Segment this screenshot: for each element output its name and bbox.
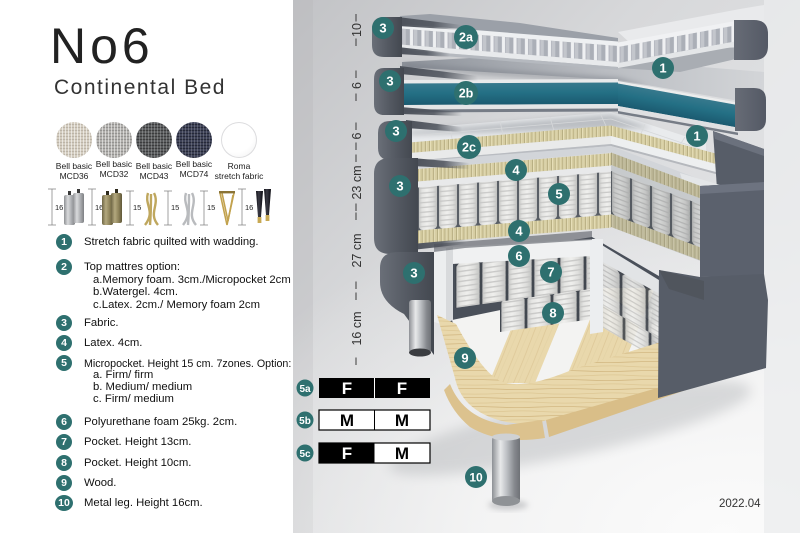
svg-text:7: 7 xyxy=(547,265,554,280)
svg-text:5a: 5a xyxy=(299,384,311,395)
svg-text:5: 5 xyxy=(555,187,562,202)
svg-text:6: 6 xyxy=(515,249,522,264)
svg-text:10: 10 xyxy=(469,471,483,485)
svg-text:16 cm: 16 cm xyxy=(350,311,364,345)
svg-text:F: F xyxy=(397,379,407,398)
svg-text:2c: 2c xyxy=(462,141,476,155)
svg-text:5b: 5b xyxy=(299,416,311,427)
svg-text:3: 3 xyxy=(386,74,393,89)
svg-text:3: 3 xyxy=(379,21,386,36)
svg-text:M: M xyxy=(340,411,354,430)
svg-text:27 cm: 27 cm xyxy=(350,233,364,267)
svg-text:2a: 2a xyxy=(459,31,474,45)
svg-text:1: 1 xyxy=(659,61,666,76)
svg-text:2022.04: 2022.04 xyxy=(719,498,761,510)
svg-text:4: 4 xyxy=(515,224,523,239)
svg-text:9: 9 xyxy=(461,351,468,366)
svg-text:3: 3 xyxy=(410,266,417,281)
svg-text:8: 8 xyxy=(549,306,556,321)
svg-text:4: 4 xyxy=(512,163,520,178)
svg-text:6: 6 xyxy=(350,82,364,89)
svg-text:5c: 5c xyxy=(299,449,311,460)
svg-text:F: F xyxy=(342,444,352,463)
svg-text:M: M xyxy=(395,411,409,430)
svg-text:3: 3 xyxy=(392,124,399,139)
svg-text:F: F xyxy=(342,379,352,398)
svg-text:3: 3 xyxy=(396,179,403,194)
svg-text:23 cm: 23 cm xyxy=(350,165,364,199)
svg-text:10: 10 xyxy=(350,23,364,37)
svg-text:1: 1 xyxy=(693,129,700,144)
svg-text:2b: 2b xyxy=(459,87,474,101)
svg-text:M: M xyxy=(395,444,409,463)
svg-text:6: 6 xyxy=(350,132,364,139)
